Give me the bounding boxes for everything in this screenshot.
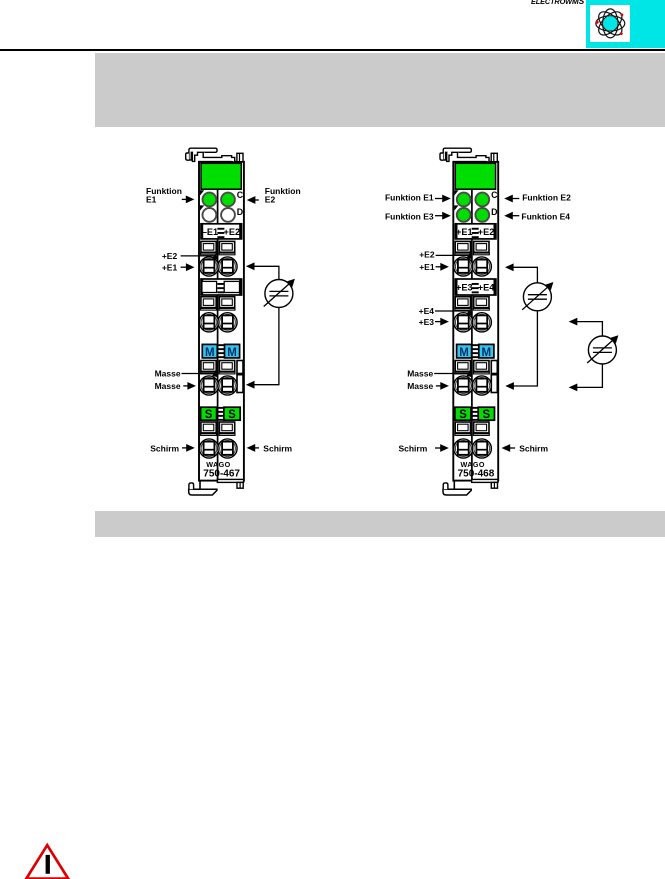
- svg-text:+E2: +E2: [478, 227, 495, 237]
- svg-text:+E4: +E4: [419, 306, 435, 316]
- svg-text:Masse: Masse: [407, 381, 433, 391]
- svg-text:Schirm: Schirm: [263, 444, 292, 454]
- svg-text:E1: E1: [146, 194, 157, 204]
- svg-text:S: S: [482, 409, 490, 421]
- svg-text:S: S: [459, 409, 467, 421]
- svg-text:M: M: [482, 347, 492, 359]
- svg-text:Funktion E4: Funktion E4: [521, 212, 570, 222]
- svg-text:M: M: [227, 347, 237, 359]
- svg-text:S: S: [205, 409, 213, 421]
- svg-text:Schirm: Schirm: [150, 444, 179, 454]
- svg-text:+E3: +E3: [419, 317, 435, 327]
- svg-text:Schirm: Schirm: [519, 444, 548, 454]
- svg-text:Funktion E1: Funktion E1: [385, 193, 434, 203]
- svg-text:C: C: [237, 190, 244, 200]
- svg-text:Schirm: Schirm: [398, 444, 427, 454]
- svg-text:Masse: Masse: [407, 368, 433, 378]
- svg-text:S: S: [228, 409, 236, 421]
- svg-text:Funktion E2: Funktion E2: [522, 193, 571, 203]
- svg-text:750-468: 750-468: [458, 468, 495, 479]
- svg-text:+E2: +E2: [419, 250, 435, 260]
- svg-text:Masse: Masse: [155, 381, 181, 391]
- svg-text:M: M: [205, 347, 215, 359]
- svg-text:D: D: [491, 207, 497, 217]
- svg-text:+E4: +E4: [478, 282, 495, 292]
- svg-text:750-467: 750-467: [203, 468, 240, 479]
- svg-text:D: D: [237, 207, 243, 217]
- svg-text:C: C: [491, 190, 498, 200]
- svg-text:Masse: Masse: [155, 368, 181, 378]
- svg-text:+E1: +E1: [419, 262, 435, 272]
- svg-text:+E2: +E2: [223, 227, 240, 237]
- svg-text:+E3: +E3: [456, 282, 473, 292]
- svg-text:–E1: –E1: [202, 227, 218, 237]
- svg-text:+E1: +E1: [162, 263, 178, 273]
- svg-text:+E1: +E1: [456, 227, 473, 237]
- svg-text:M: M: [459, 347, 469, 359]
- svg-text:E2: E2: [265, 194, 276, 204]
- svg-text:+E2: +E2: [162, 251, 178, 261]
- svg-text:Funktion E3: Funktion E3: [385, 212, 434, 222]
